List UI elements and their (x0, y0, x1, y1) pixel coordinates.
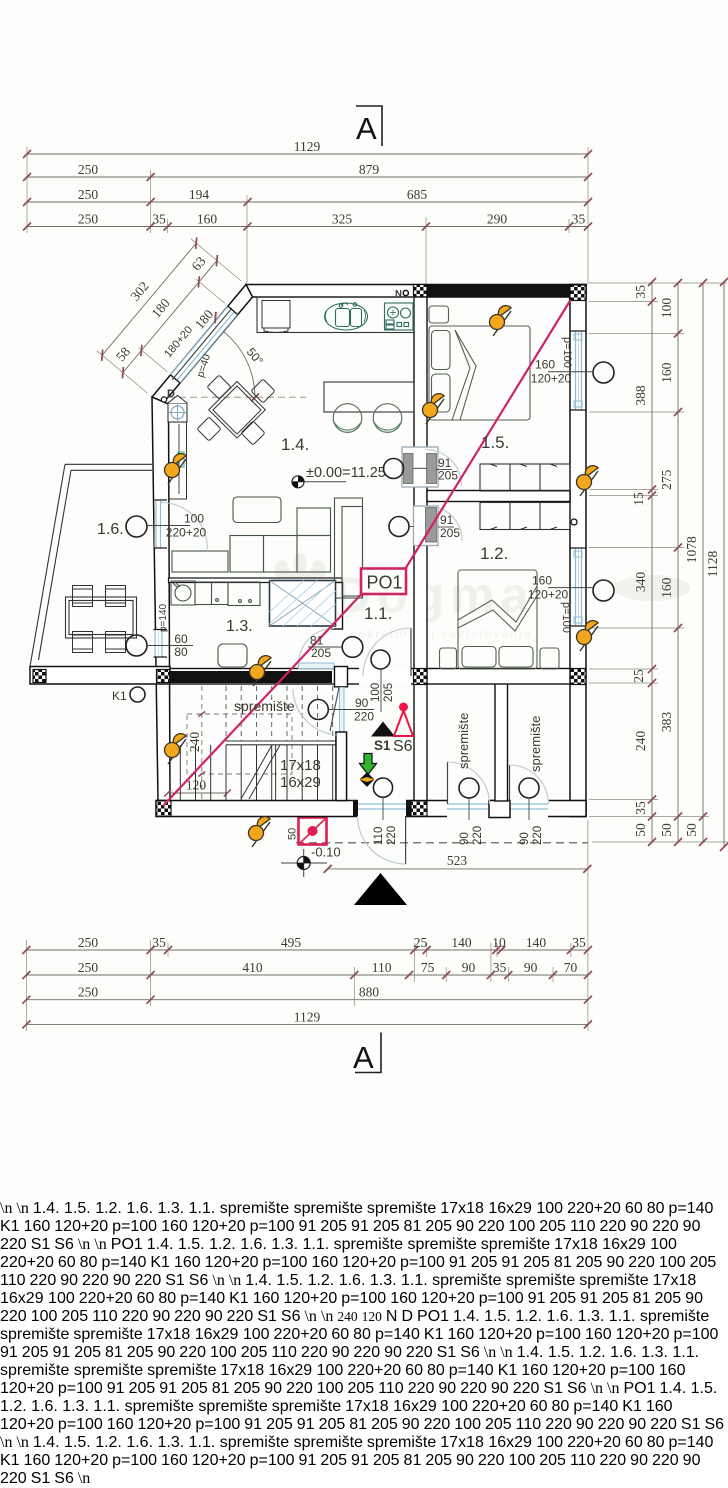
svg-text:16x29: 16x29 (280, 774, 321, 791)
svg-text:240: 240 (633, 731, 648, 752)
svg-text:220: 220 (472, 826, 484, 845)
svg-text:250: 250 (78, 187, 99, 202)
svg-text:35: 35 (572, 935, 586, 950)
svg-text:240: 240 (187, 732, 202, 753)
svg-text:495: 495 (281, 935, 302, 950)
svg-text:205: 205 (440, 526, 460, 540)
svg-text:spremište: spremište (528, 716, 543, 772)
svg-text:110: 110 (373, 827, 385, 845)
svg-text:220: 220 (354, 710, 374, 724)
svg-text:spremište: spremište (456, 713, 471, 769)
svg-text:250: 250 (78, 985, 99, 1000)
svg-text:880: 880 (359, 985, 380, 1000)
svg-text:p=140: p=140 (158, 603, 169, 632)
svg-text:205: 205 (311, 646, 331, 660)
svg-text:879: 879 (359, 162, 380, 177)
svg-text:p=100: p=100 (561, 337, 573, 368)
svg-text:1.4.: 1.4. (281, 435, 309, 454)
svg-text:1.3.: 1.3. (226, 618, 253, 635)
svg-text:35: 35 (572, 212, 586, 227)
svg-text:220+20: 220+20 (166, 526, 207, 540)
svg-text:35: 35 (633, 801, 648, 815)
svg-text:90: 90 (355, 696, 369, 710)
svg-text:250: 250 (78, 960, 99, 975)
svg-text:160: 160 (659, 577, 674, 598)
svg-text:120+20: 120+20 (528, 588, 569, 602)
svg-text:1.6.: 1.6. (97, 521, 124, 538)
svg-text:10: 10 (492, 935, 506, 950)
svg-text:388: 388 (633, 385, 648, 406)
svg-text:35: 35 (152, 935, 166, 950)
svg-text:S1: S1 (374, 738, 391, 753)
svg-text:80: 80 (174, 645, 188, 659)
svg-text:325: 325 (332, 212, 353, 227)
svg-text:1129: 1129 (294, 1009, 321, 1024)
svg-text:100: 100 (184, 512, 204, 526)
svg-text:90: 90 (459, 832, 471, 845)
svg-text:383: 383 (659, 712, 674, 733)
svg-text:35: 35 (152, 212, 166, 227)
svg-text:90: 90 (524, 960, 538, 975)
svg-text:205: 205 (438, 469, 458, 483)
svg-text:60: 60 (174, 632, 188, 646)
svg-text:nekretnine i savjetovanje: nekretnine i savjetovanje (350, 627, 532, 641)
svg-text:D: D (167, 388, 175, 400)
svg-text:35: 35 (633, 285, 648, 299)
svg-text:1.5.: 1.5. (481, 433, 509, 452)
svg-text:17x18: 17x18 (280, 757, 321, 774)
svg-text:120+20: 120+20 (531, 372, 572, 386)
svg-text:1129: 1129 (294, 139, 321, 154)
svg-text:275: 275 (659, 469, 674, 490)
svg-text:35: 35 (493, 960, 507, 975)
svg-text:N: N (395, 289, 402, 300)
svg-text:110: 110 (372, 960, 392, 975)
svg-text:220: 220 (532, 826, 544, 845)
svg-text:±0.00=11.25: ±0.00=11.25 (306, 465, 386, 481)
svg-text:K1: K1 (112, 689, 127, 703)
svg-text:-0.10: -0.10 (311, 845, 341, 860)
svg-text:250: 250 (78, 162, 99, 177)
svg-text:70: 70 (564, 960, 578, 975)
svg-text:1.1.: 1.1. (364, 604, 392, 623)
svg-text:685: 685 (407, 187, 428, 202)
svg-text:PO1: PO1 (367, 573, 403, 593)
svg-text:140: 140 (526, 935, 547, 950)
svg-text:250: 250 (78, 935, 99, 950)
svg-text:50: 50 (659, 823, 674, 837)
svg-text:523: 523 (447, 853, 468, 868)
svg-text:50: 50 (633, 823, 648, 837)
svg-text:100: 100 (659, 298, 674, 319)
svg-text:290: 290 (487, 212, 508, 227)
svg-text:90: 90 (462, 960, 476, 975)
svg-text:340: 340 (633, 572, 648, 593)
svg-text:205: 205 (383, 683, 395, 702)
svg-text:1078: 1078 (684, 536, 699, 563)
svg-text:1.2.: 1.2. (480, 544, 508, 563)
svg-text:140: 140 (451, 935, 472, 950)
svg-text:50: 50 (287, 828, 299, 840)
svg-text:160: 160 (197, 212, 218, 227)
svg-text:160: 160 (532, 574, 552, 588)
svg-text:spremište: spremište (234, 698, 295, 714)
svg-text:410: 410 (242, 960, 263, 975)
svg-text:15: 15 (631, 492, 646, 506)
svg-text:250: 250 (78, 212, 99, 227)
svg-text:S6: S6 (393, 738, 413, 755)
svg-text:91: 91 (440, 513, 454, 527)
svg-text:220: 220 (386, 826, 398, 845)
svg-text:A: A (353, 1040, 374, 1075)
svg-text:194: 194 (189, 187, 210, 202)
svg-text:A: A (356, 111, 377, 146)
svg-text:25: 25 (414, 935, 428, 950)
svg-text:90: 90 (519, 832, 531, 845)
svg-text:p=100: p=100 (560, 602, 572, 633)
svg-text:50: 50 (684, 823, 699, 837)
svg-text:160: 160 (659, 362, 674, 383)
svg-text:100: 100 (370, 683, 382, 702)
svg-text:1128: 1128 (705, 551, 720, 578)
svg-text:160: 160 (535, 358, 555, 372)
svg-text:25: 25 (631, 669, 646, 683)
svg-text:75: 75 (421, 960, 435, 975)
